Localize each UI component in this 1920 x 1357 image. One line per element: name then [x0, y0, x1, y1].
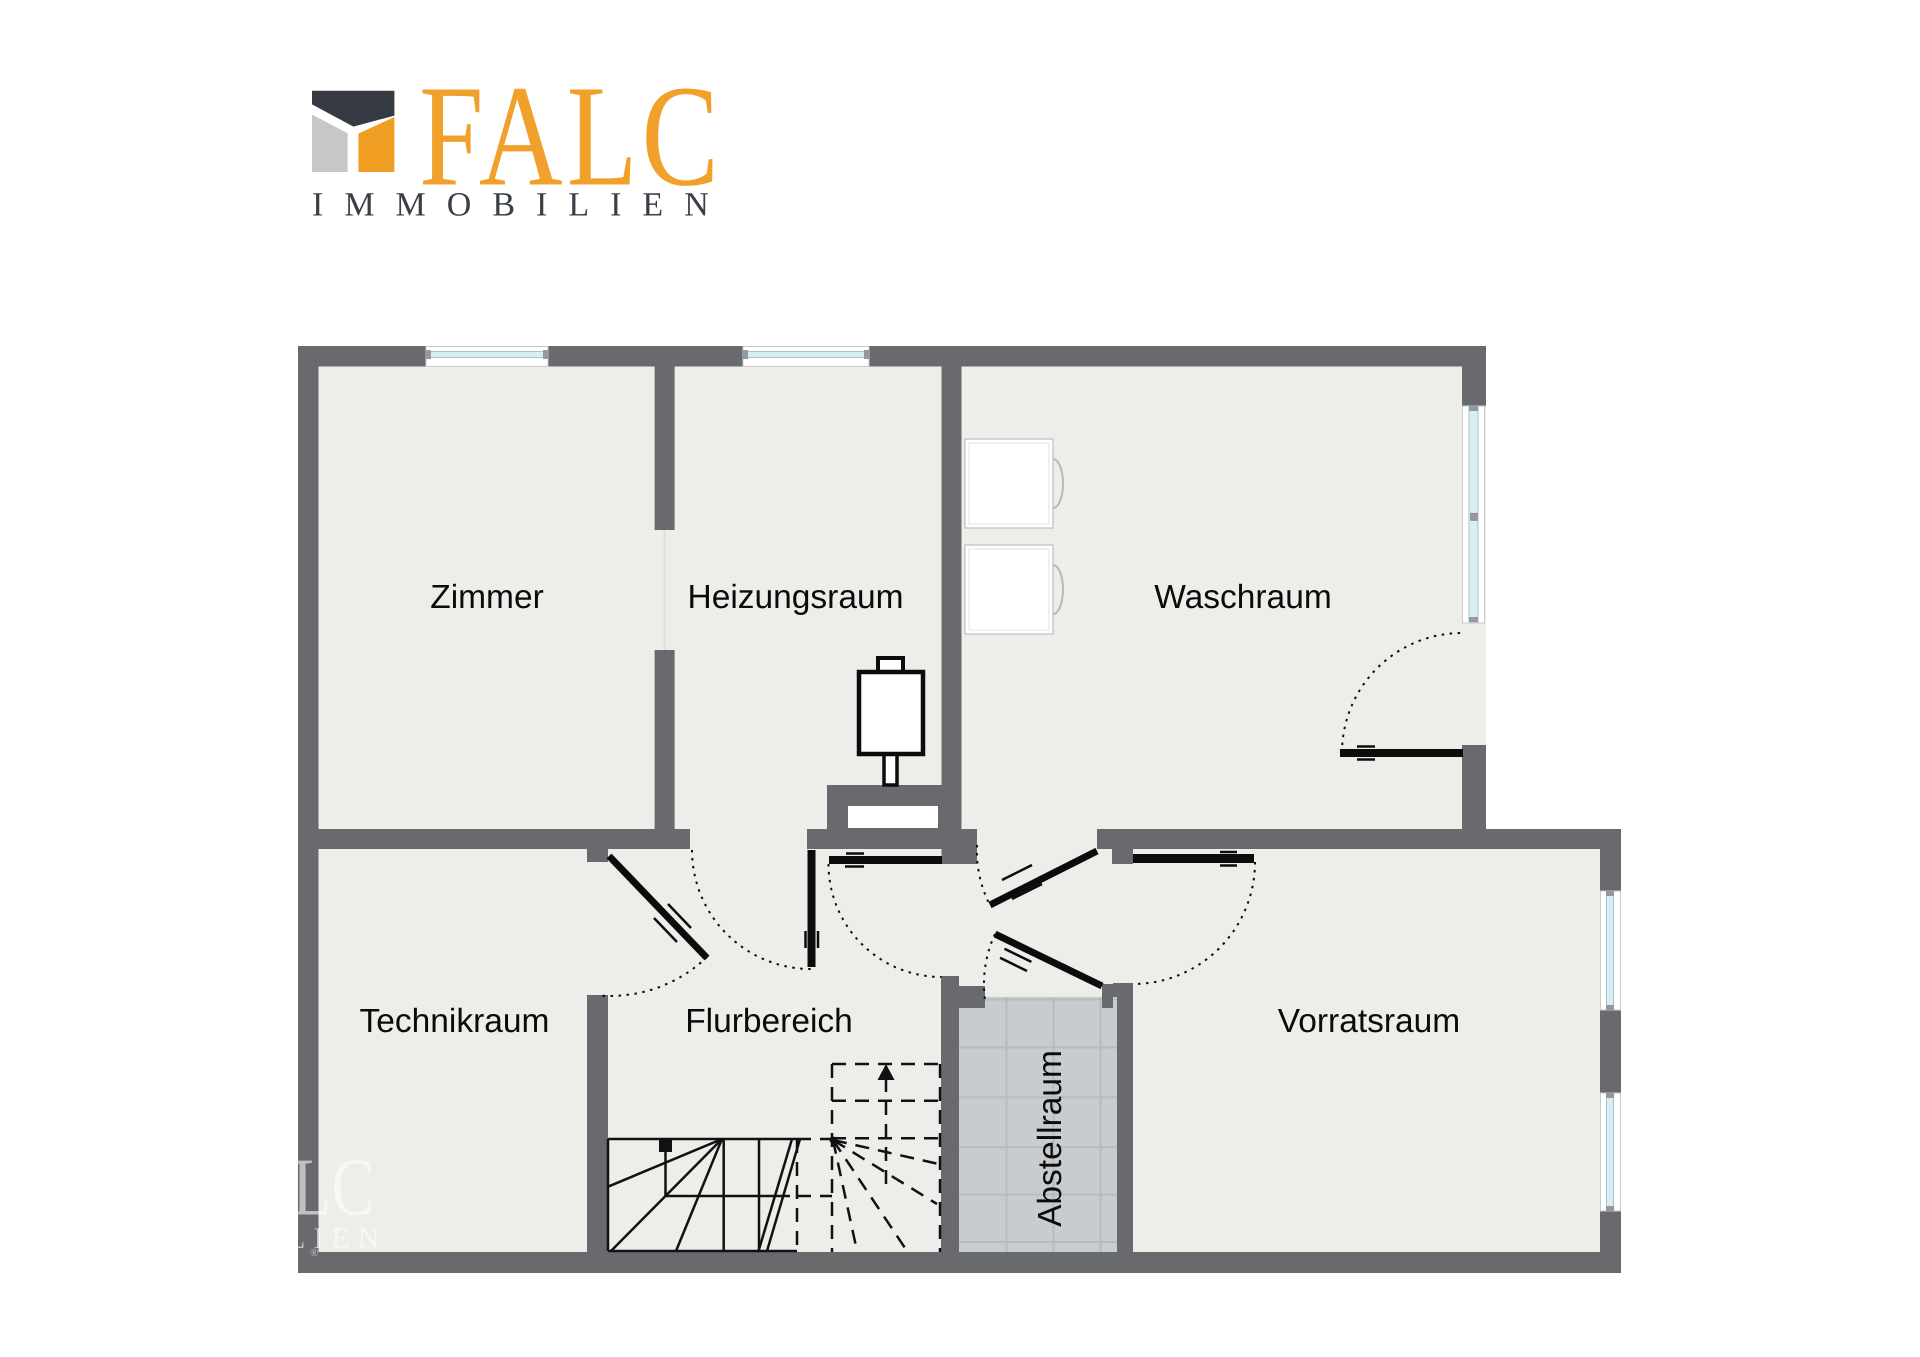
svg-text:IMMOBILIEN: IMMOBILIEN — [312, 187, 730, 224]
svg-text:Technikraum: Technikraum — [360, 1003, 550, 1040]
svg-text:FALC: FALC — [215, 1142, 374, 1233]
svg-text:IMMOBILIEN: IMMOBILIEN — [124, 1222, 387, 1255]
svg-text:Waschraum: Waschraum — [1154, 579, 1331, 616]
svg-text:Abstellraum: Abstellraum — [1032, 1050, 1069, 1227]
svg-text:Vorratsraum: Vorratsraum — [1278, 1003, 1460, 1040]
svg-text:Zimmer: Zimmer — [430, 579, 544, 616]
svg-text:Flurbereich: Flurbereich — [685, 1003, 853, 1040]
svg-text:®: ® — [310, 1247, 318, 1259]
svg-text:Heizungsraum: Heizungsraum — [688, 579, 904, 616]
